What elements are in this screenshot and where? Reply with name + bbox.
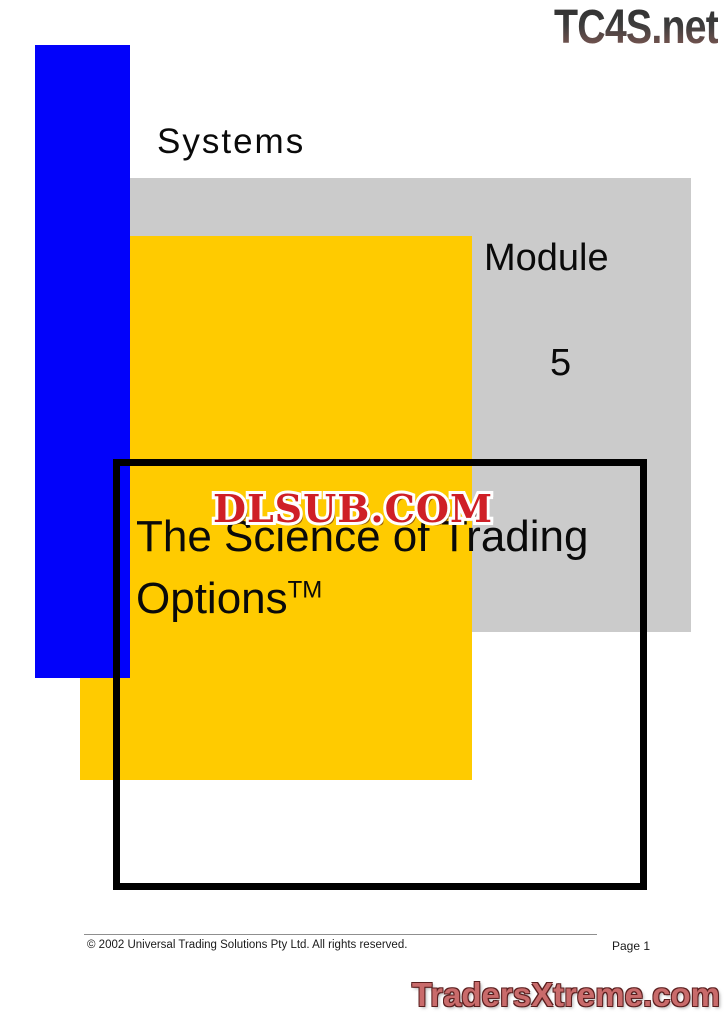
page-number: Page 1 xyxy=(612,939,650,953)
tradersxtreme-watermark-logo: TradersXtreme.com xyxy=(412,976,720,1014)
module-label: Module xyxy=(484,237,609,280)
module-number: 5 xyxy=(550,342,571,385)
copyright-notice: © 2002 Universal Trading Solutions Pty L… xyxy=(87,939,407,951)
footer-divider xyxy=(84,934,597,935)
trademark-superscript: TM xyxy=(288,576,323,603)
tc4s-watermark-logo: TC4S.net xyxy=(554,0,718,55)
dlsub-watermark-text: DLSUB.COM xyxy=(213,486,493,531)
title-line2: Options xyxy=(136,574,288,623)
systems-heading: Systems xyxy=(157,122,305,162)
dlsub-watermark-logo: DLSUB.COM DLSUB.COM xyxy=(208,483,518,541)
document-page: Systems Module 5 The Science of Trading … xyxy=(0,0,724,1024)
